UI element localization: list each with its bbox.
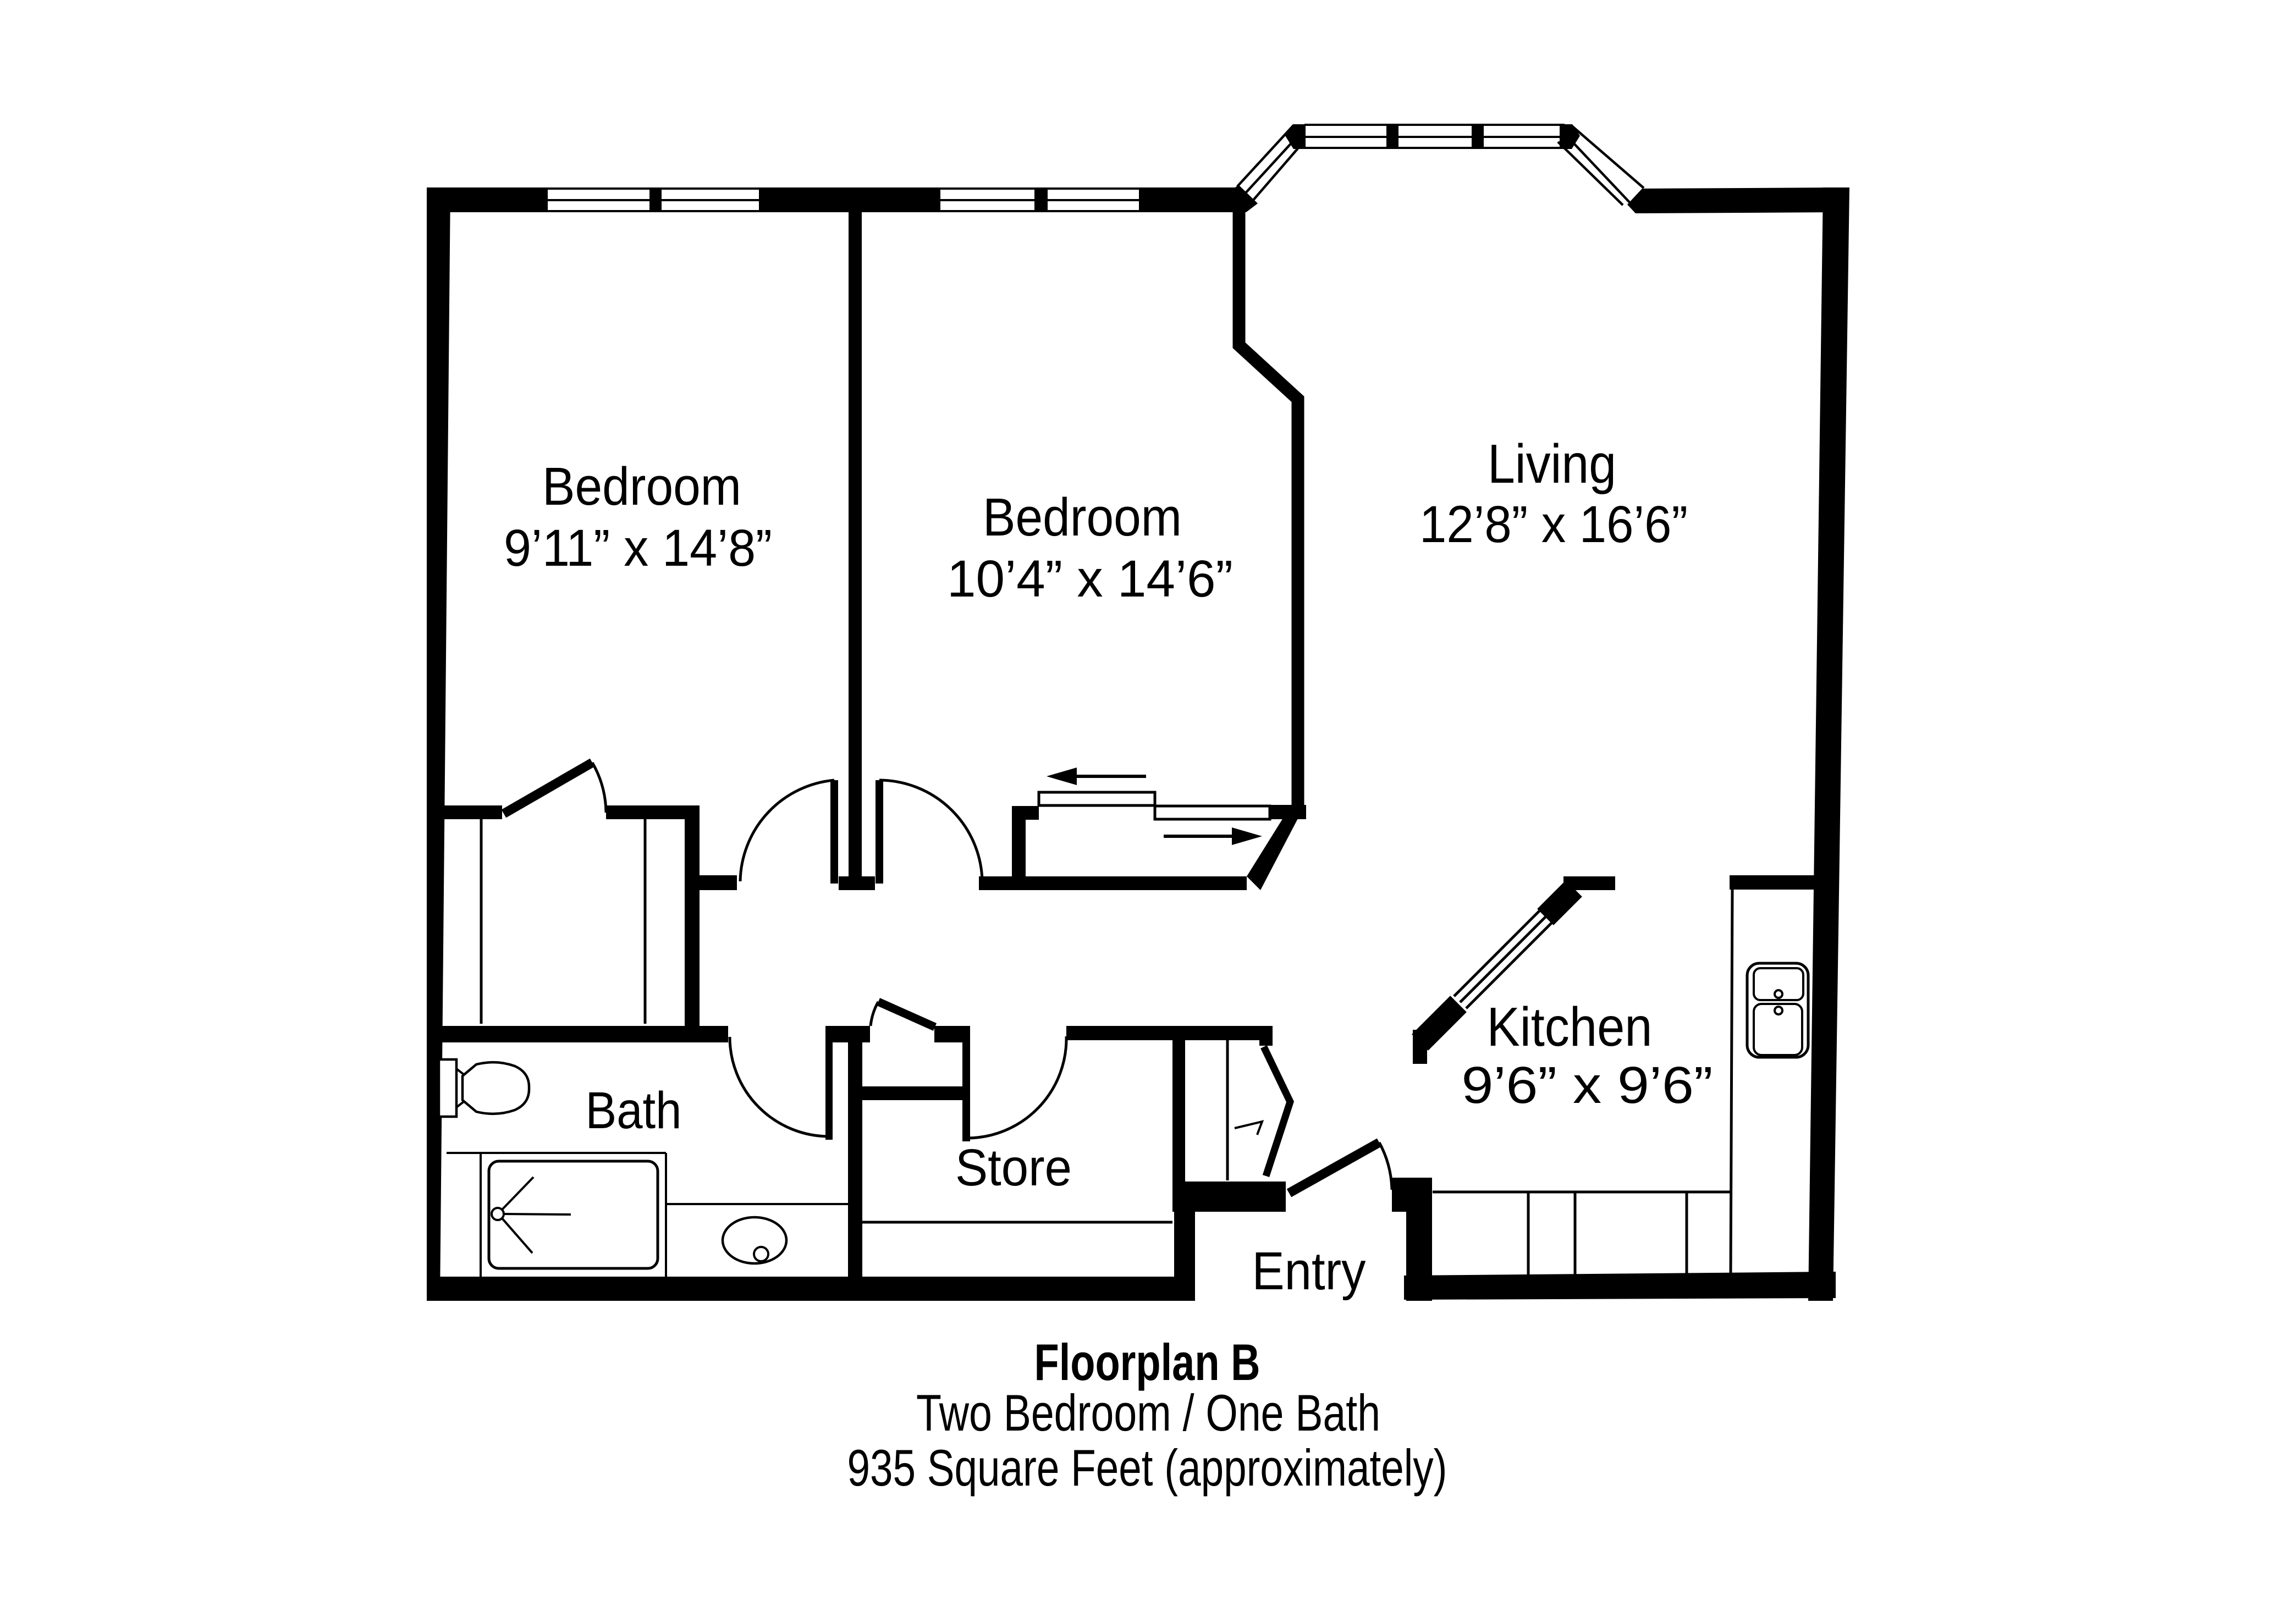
svg-text:935 Square Feet (approximately: 935 Square Feet (approximately) xyxy=(847,1439,1447,1497)
svg-text:Two Bedroom / One Bath: Two Bedroom / One Bath xyxy=(916,1384,1380,1442)
svg-text:Entry: Entry xyxy=(1252,1241,1366,1301)
svg-text:9’6” x 9’6”: 9’6” x 9’6” xyxy=(1462,1056,1713,1114)
svg-text:Living: Living xyxy=(1488,433,1616,495)
svg-text:Kitchen: Kitchen xyxy=(1487,996,1653,1058)
svg-text:Bath: Bath xyxy=(586,1081,682,1140)
svg-text:9’11” x 14’8”: 9’11” x 14’8” xyxy=(504,519,772,577)
svg-text:Bedroom: Bedroom xyxy=(983,487,1182,547)
svg-text:Store: Store xyxy=(955,1139,1072,1197)
svg-text:12’8” x 16’6”: 12’8” x 16’6” xyxy=(1419,495,1688,554)
svg-text:Bedroom: Bedroom xyxy=(542,456,741,516)
svg-text:Floorplan B: Floorplan B xyxy=(1034,1333,1260,1391)
svg-text:10’4” x 14’6”: 10’4” x 14’6” xyxy=(947,550,1233,608)
